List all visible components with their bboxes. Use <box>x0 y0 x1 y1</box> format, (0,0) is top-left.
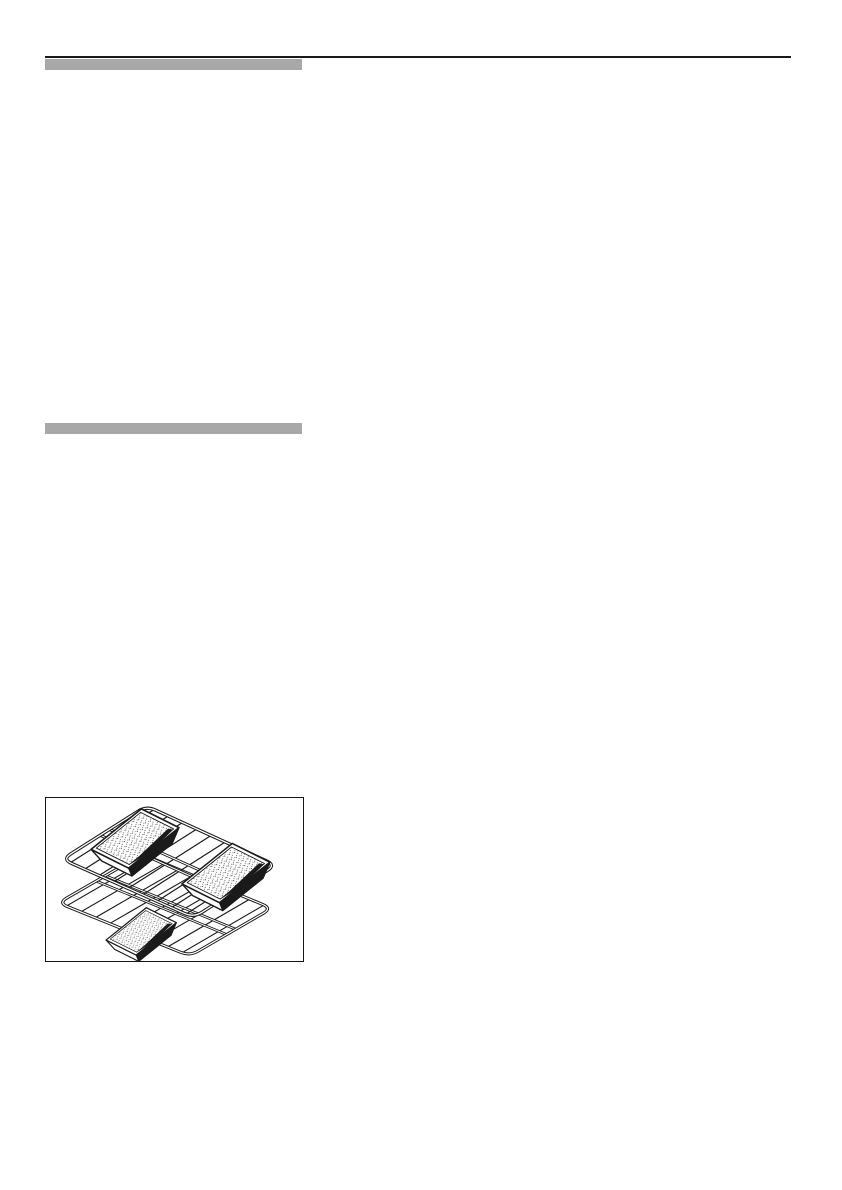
heading-placeholder-bar-1 <box>45 59 302 70</box>
header-rule <box>45 56 791 58</box>
figure-oven-racks-with-loaf-pans <box>45 797 304 962</box>
heading-placeholder-bar-2 <box>45 423 302 434</box>
oven-racks-illustration <box>46 798 303 961</box>
manual-page <box>0 0 842 1190</box>
loaf-pan-lower-rack <box>106 908 176 961</box>
